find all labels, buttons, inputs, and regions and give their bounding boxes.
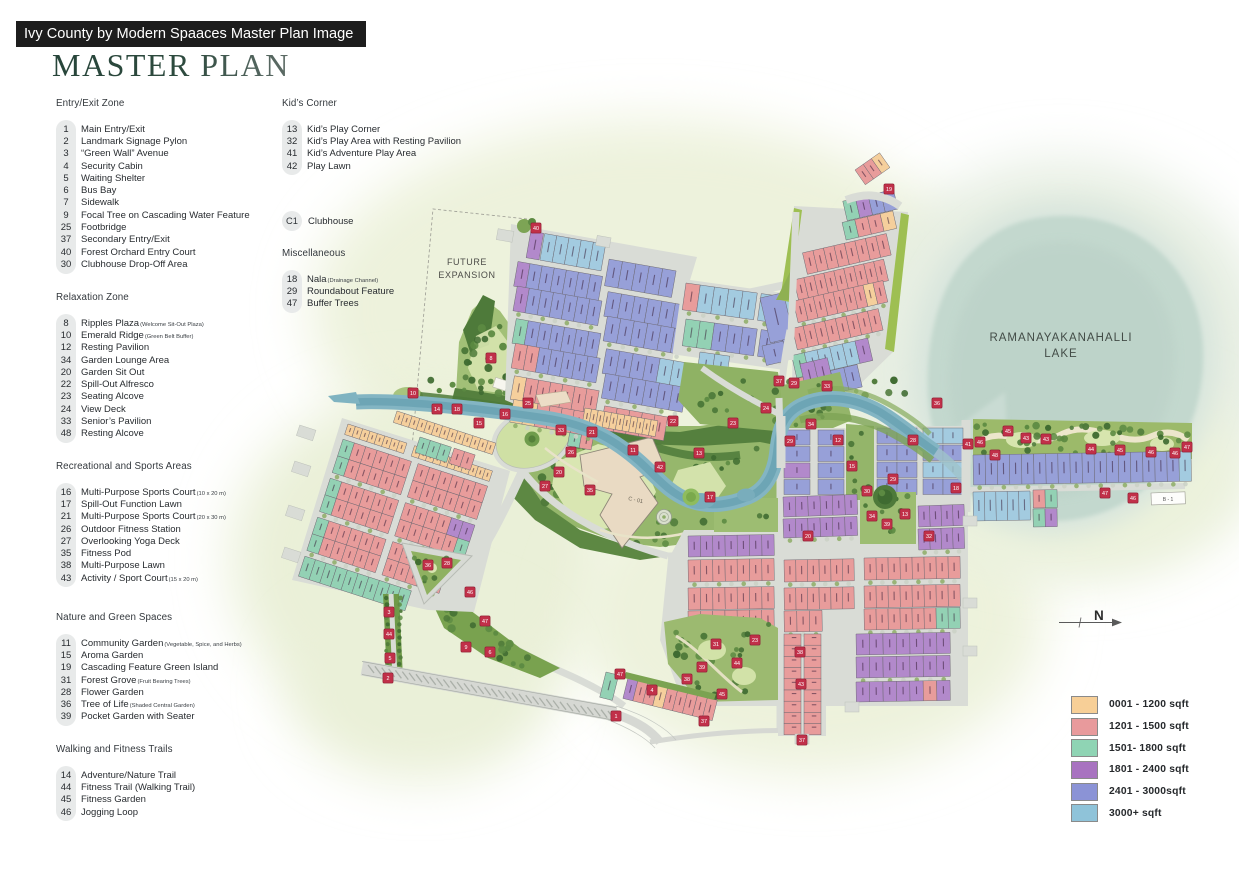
svg-text:33: 33	[558, 428, 564, 434]
svg-text:46: 46	[977, 440, 983, 446]
svg-text:FUTURE: FUTURE	[447, 257, 487, 267]
svg-text:21: 21	[589, 430, 595, 436]
svg-text:LAKE: LAKE	[1044, 348, 1077, 360]
svg-text:46: 46	[1148, 450, 1154, 456]
svg-text:48: 48	[992, 453, 998, 459]
svg-text:38: 38	[797, 650, 803, 656]
svg-text:26: 26	[568, 450, 574, 456]
svg-text:5: 5	[389, 656, 392, 662]
svg-text:32: 32	[926, 534, 932, 540]
svg-text:15: 15	[849, 464, 855, 470]
svg-text:13: 13	[696, 451, 702, 457]
svg-text:8: 8	[490, 356, 493, 362]
svg-text:28: 28	[444, 561, 450, 567]
svg-text:37: 37	[799, 738, 805, 744]
svg-text:6: 6	[489, 650, 492, 656]
svg-text:18: 18	[454, 407, 460, 413]
svg-text:35: 35	[587, 488, 593, 494]
svg-text:29: 29	[787, 439, 793, 445]
svg-text:37: 37	[701, 719, 707, 725]
svg-text:47: 47	[617, 672, 623, 678]
svg-text:9: 9	[465, 645, 468, 651]
svg-text:23: 23	[730, 421, 736, 427]
svg-text:10: 10	[410, 391, 416, 397]
svg-text:1: 1	[615, 714, 618, 720]
svg-text:42: 42	[657, 465, 663, 471]
svg-text:30: 30	[864, 489, 870, 495]
svg-text:41: 41	[965, 442, 971, 448]
svg-text:14: 14	[434, 407, 440, 413]
svg-text:17: 17	[707, 495, 713, 501]
svg-text:19: 19	[886, 187, 892, 193]
svg-text:23: 23	[752, 638, 758, 644]
svg-text:3: 3	[388, 610, 391, 616]
svg-text:16: 16	[502, 412, 508, 418]
svg-text:25: 25	[525, 401, 531, 407]
svg-text:33: 33	[824, 384, 830, 390]
svg-text:44: 44	[386, 632, 392, 638]
svg-text:N: N	[1094, 608, 1104, 623]
svg-text:RAMANAYAKANAHALLI: RAMANAYAKANAHALLI	[989, 332, 1132, 344]
svg-text:39: 39	[884, 522, 890, 528]
svg-text:12: 12	[835, 438, 841, 444]
svg-text:40: 40	[533, 226, 539, 232]
svg-text:B - 1: B - 1	[1163, 497, 1174, 503]
svg-text:20: 20	[805, 534, 811, 540]
svg-text:47: 47	[1102, 491, 1108, 497]
svg-text:37: 37	[776, 379, 782, 385]
svg-text:EXPANSION: EXPANSION	[438, 270, 495, 280]
svg-text:45: 45	[719, 692, 725, 698]
svg-text:2: 2	[387, 676, 390, 682]
svg-text:43: 43	[1023, 436, 1029, 442]
svg-text:45: 45	[1005, 429, 1011, 435]
svg-text:46: 46	[467, 590, 473, 596]
svg-text:29: 29	[890, 477, 896, 483]
svg-text:11: 11	[630, 448, 636, 454]
svg-text:47: 47	[1184, 445, 1190, 451]
svg-text:4: 4	[651, 688, 654, 694]
svg-text:22: 22	[670, 419, 676, 425]
svg-text:46: 46	[1172, 451, 1178, 457]
svg-text:38: 38	[684, 677, 690, 683]
svg-text:39: 39	[699, 665, 705, 671]
svg-text:29: 29	[791, 381, 797, 387]
svg-text:24: 24	[763, 406, 769, 412]
svg-text:45: 45	[1117, 448, 1123, 454]
svg-text:31: 31	[713, 642, 719, 648]
svg-text:34: 34	[808, 422, 814, 428]
svg-text:20: 20	[556, 470, 562, 476]
svg-text:43: 43	[1043, 437, 1049, 443]
svg-text:15: 15	[476, 421, 482, 427]
svg-text:27: 27	[542, 484, 548, 490]
svg-text:47: 47	[482, 619, 488, 625]
svg-text:28: 28	[910, 438, 916, 444]
svg-text:44: 44	[1088, 447, 1094, 453]
svg-text:13: 13	[902, 512, 908, 518]
svg-text:36: 36	[934, 401, 940, 407]
svg-text:43: 43	[798, 682, 804, 688]
svg-text:18: 18	[953, 486, 959, 492]
svg-text:34: 34	[869, 514, 875, 520]
svg-text:46: 46	[1130, 496, 1136, 502]
svg-text:36: 36	[425, 563, 431, 569]
svg-text:44: 44	[734, 661, 740, 667]
